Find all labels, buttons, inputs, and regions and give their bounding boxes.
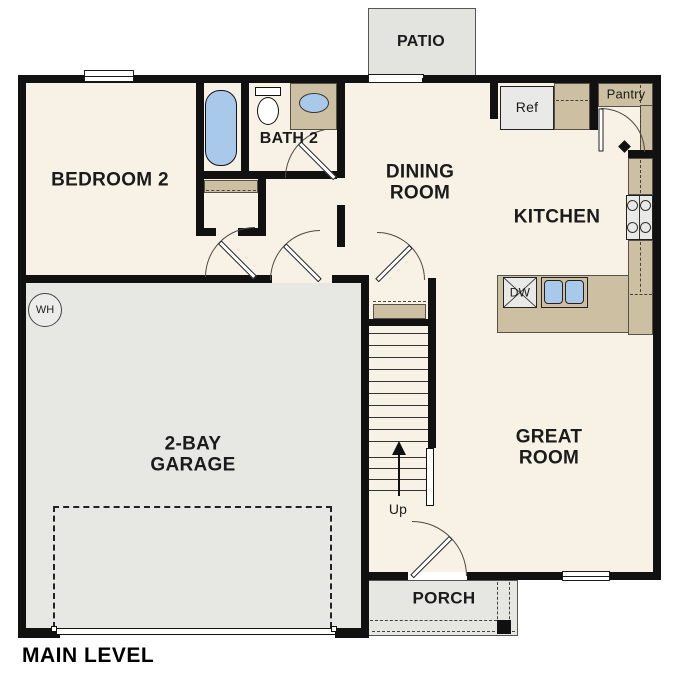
burner-3	[627, 222, 638, 233]
stair-tread	[369, 333, 428, 334]
wall-left	[18, 75, 26, 638]
stair-tread	[369, 381, 428, 382]
stair-tread	[369, 429, 428, 430]
counter-lower-dash	[640, 242, 642, 292]
dining-label: DINING ROOM	[386, 162, 454, 205]
sink-basin-left	[544, 280, 563, 304]
counter-upper-dash	[640, 160, 642, 193]
burner-4	[640, 222, 651, 233]
stair-tread	[369, 405, 428, 406]
pantry-door-leaf	[599, 109, 604, 152]
water-heater: WH	[28, 293, 62, 327]
wall-bath-dining-upper	[337, 83, 345, 178]
porch-label: PORCH	[413, 588, 476, 607]
bedroom-closet-rod	[206, 190, 256, 192]
burner-1	[627, 200, 638, 211]
bedroom2-label: BEDROOM 2	[51, 169, 169, 190]
bathtub	[205, 90, 237, 166]
porch-dash-h1	[370, 620, 497, 622]
counter-right-of-ref	[554, 83, 590, 130]
stair-tread	[369, 369, 428, 370]
stairs-arrow-head	[392, 441, 406, 455]
stair-tread	[369, 357, 428, 358]
stair-tread	[369, 393, 428, 394]
patio-label: PATIO	[397, 33, 445, 51]
toilet-bowl	[257, 97, 279, 125]
wall-bedroom-east	[196, 83, 204, 236]
stair-tread	[369, 345, 428, 346]
wall-stair-west	[361, 283, 369, 638]
porch-dash-h2	[372, 631, 515, 633]
wall-hall-garage	[332, 275, 369, 283]
wall-stair-east	[428, 278, 436, 448]
garage-door-end-left	[51, 626, 57, 632]
wall-stair-closet	[369, 319, 430, 326]
counter-end-dash	[630, 294, 652, 296]
toilet-tank	[255, 87, 281, 96]
stair-closet-rod	[373, 301, 426, 303]
floor-plan: WH BEDROOM 2 BATH 2 DINING ROOM KITCHEN …	[0, 0, 687, 687]
garage-label: 2-BAY GARAGE	[150, 434, 235, 477]
dw-label: DW	[510, 286, 530, 299]
patio-slider-track	[422, 78, 476, 83]
kitchen-label: KITCHEN	[514, 206, 601, 227]
stair-closet-shelf	[373, 304, 426, 319]
ref-shelf-dash	[556, 100, 588, 102]
wall-closet-stub-left	[196, 228, 216, 236]
garage-door-line	[57, 628, 335, 635]
ref-label: Ref	[516, 100, 538, 116]
bedroom-window	[84, 70, 134, 82]
wall-bath-dining-lower	[337, 205, 345, 247]
up-label: Up	[389, 502, 407, 518]
bath2-label: BATH 2	[260, 130, 318, 148]
wall-ref-stub	[490, 83, 498, 119]
wall-pantry-left	[590, 83, 598, 130]
stairs-railing	[426, 448, 434, 506]
pantry-label: Pantry	[607, 88, 646, 103]
garage-door-end-right	[331, 626, 337, 632]
vanity-sink	[299, 93, 329, 113]
garage-door-dashed	[53, 506, 332, 628]
stair-tread	[369, 417, 428, 418]
sink-basin-right	[565, 280, 584, 304]
patio-slider-panel	[368, 74, 424, 83]
stairs-arrow-stem	[398, 454, 400, 496]
porch-post	[497, 620, 511, 634]
plan-title: MAIN LEVEL	[22, 644, 154, 668]
greatroom-window	[562, 571, 610, 581]
wall-tub-separator	[241, 83, 249, 175]
burner-2	[640, 200, 651, 211]
greatroom-label: GREAT ROOM	[516, 427, 583, 470]
